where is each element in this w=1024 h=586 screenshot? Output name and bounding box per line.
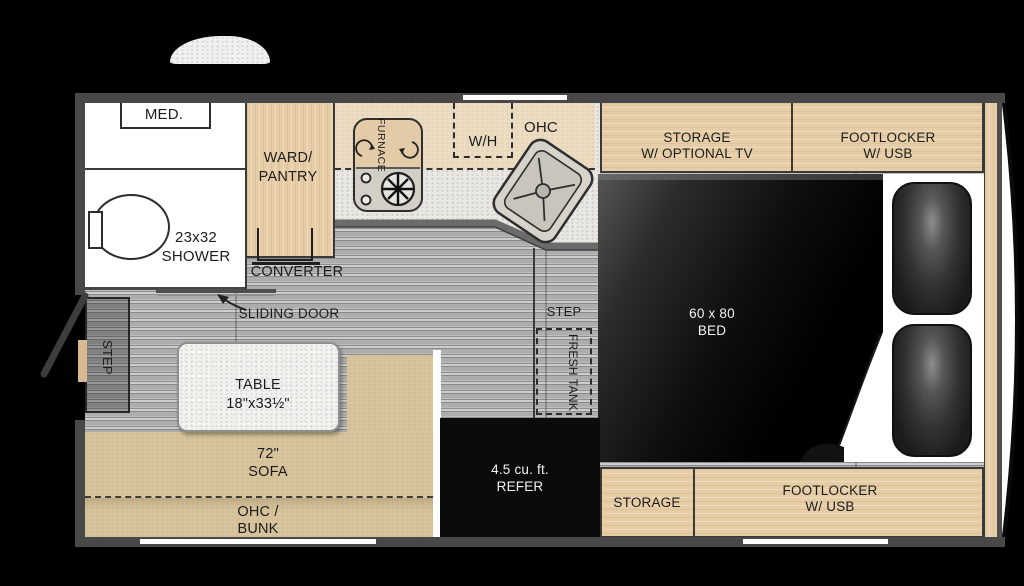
ohc-label: OHC [524, 119, 558, 136]
window-bottom-left [140, 539, 376, 544]
converter-box [257, 228, 313, 261]
med-label: MED. [145, 106, 183, 123]
bathroom-divider [85, 168, 245, 170]
window-top [463, 95, 567, 100]
bed-edge-highlight [598, 174, 883, 180]
entry-step-label: STEP [100, 317, 115, 397]
wardrobe-label: WARD/ PANTRY [259, 149, 318, 187]
shower-label: 23x32 SHOWER [162, 228, 231, 266]
bunk-label: OHC / BUNK [237, 504, 278, 538]
bunk-dashed-line [85, 496, 433, 498]
front-wall-line [997, 95, 1002, 545]
cab-seat-top [892, 182, 972, 315]
wall-left-upper [75, 93, 85, 295]
furnace-range-unit [353, 118, 423, 212]
sofa-side-block [347, 355, 433, 432]
window-bottom-right [743, 539, 888, 544]
footlocker-bottom-label: FOOTLOCKER W/ USB [782, 483, 877, 515]
sliding-door-panel [158, 294, 274, 296]
door-threshold [78, 340, 87, 382]
fresh-tank-label: FRESH TANK [546, 333, 580, 411]
bed-step-label: STEP [547, 304, 582, 319]
wall-left-lower [75, 420, 85, 547]
toilet-tank [88, 211, 103, 249]
cab-seat-bottom [892, 324, 972, 457]
bed [598, 174, 883, 462]
furnace-label: FURNACE [375, 117, 387, 173]
step-strip-divider [533, 248, 535, 418]
footlocker-top-label: FOOTLOCKER W/ USB [840, 130, 935, 162]
front-wall-strip [984, 103, 997, 538]
sofa-label: 72" SOFA [248, 445, 287, 481]
toilet [92, 194, 170, 260]
sliding-door-track [156, 289, 276, 293]
bed-label: 60 x 80 BED [689, 305, 735, 339]
storage-tv-label: STORAGE W/ OPTIONAL TV [641, 130, 753, 162]
converter-label: CONVERTER [251, 264, 344, 280]
sliding-door-label: SLIDING DOOR [239, 306, 340, 321]
refer-label: 4.5 cu. ft. REFER [491, 461, 549, 495]
floorplan-canvas: MED. 23x32 SHOWER WARD/ PANTRY CONVERTER… [0, 0, 1024, 586]
table-label: TABLE 18"x33½" [226, 376, 290, 414]
water-heater-label: W/H [469, 134, 498, 150]
storage-bottom-label: STORAGE [613, 495, 680, 510]
